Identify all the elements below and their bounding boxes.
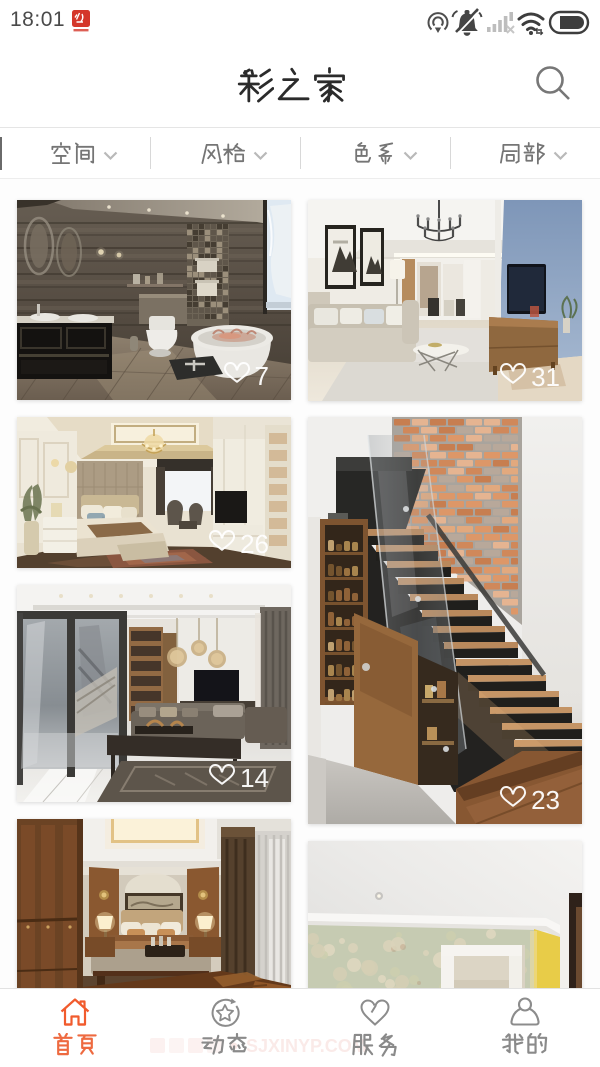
svg-text:7: 7 <box>255 361 269 391</box>
svg-text:31: 31 <box>531 362 560 392</box>
svg-text:14: 14 <box>240 763 269 793</box>
svg-text:23: 23 <box>531 785 560 815</box>
svg-text:26: 26 <box>240 529 269 559</box>
